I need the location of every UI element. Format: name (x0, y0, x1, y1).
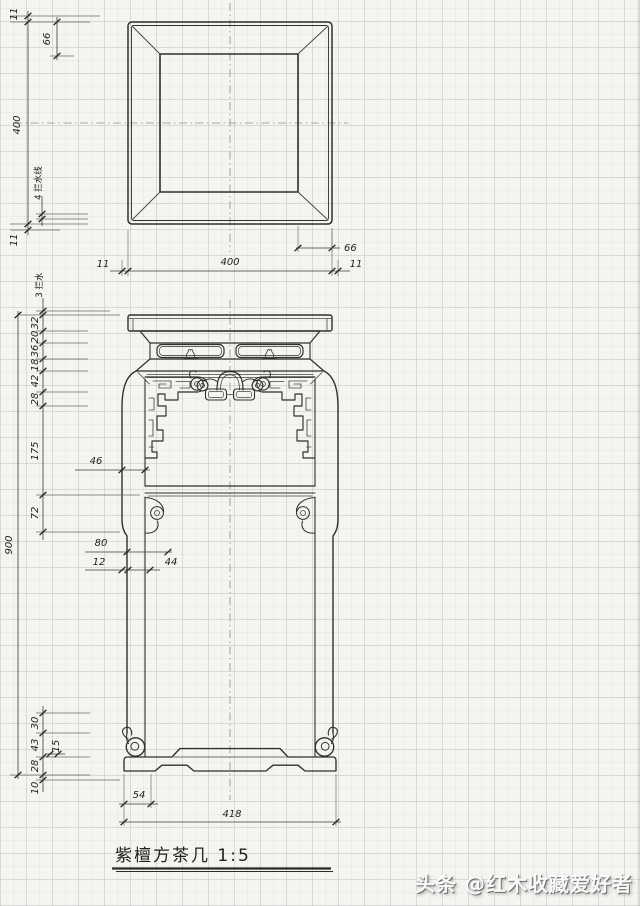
dim-label-400-bottom: 400 (220, 257, 239, 268)
dim-label-80: 80 (95, 538, 108, 549)
leg-assembly-right (252, 371, 338, 757)
ruyi-motif (263, 350, 277, 358)
dim-label-36: 36 (30, 345, 41, 358)
ruyi-motif (184, 350, 198, 358)
front-view (122, 300, 338, 800)
dim-label-418: 418 (222, 809, 241, 820)
technical-drawing-canvas: 11 66 400 4 拦水线 11 66 11 400 11 (0, 0, 640, 906)
dim-label-10: 10 (30, 782, 41, 795)
dim-label-15: 15 (51, 740, 62, 753)
waist-panel-left (157, 345, 224, 359)
dim-label-44: 44 (165, 557, 178, 568)
dim-label-46: 46 (90, 456, 103, 467)
dim-label-66-right: 66 (344, 243, 357, 254)
dim-label-12: 12 (93, 557, 106, 568)
dim-label-28b: 28 (30, 760, 41, 773)
title-block: 紫檀方茶几 1:5 (112, 846, 333, 872)
dim-label-72: 72 (30, 507, 41, 520)
dim-label-11-br: 11 (350, 259, 363, 270)
dim-label-43: 43 (30, 739, 41, 752)
dim-label-32: 32 (30, 317, 41, 330)
dim-label-11-bottom: 11 (9, 234, 20, 247)
dim-note-elevation: 3 拦水 (34, 272, 45, 298)
dim-label-11-top: 11 (9, 8, 20, 21)
dim-label-18: 18 (30, 359, 41, 372)
dim-overall-height: 900 (4, 311, 90, 779)
apron-spandrel (145, 377, 208, 458)
dim-label-20: 20 (30, 331, 41, 344)
dim-label-42: 42 (30, 375, 41, 388)
dim-label-28: 28 (30, 393, 41, 406)
dim-leg: 46 80 12 44 (75, 456, 177, 573)
dim-label-54: 54 (133, 790, 146, 801)
dim-label-11-bl: 11 (97, 259, 110, 270)
dim-label-30: 30 (30, 717, 41, 730)
drawing-title: 紫檀方茶几 1:5 (115, 846, 251, 866)
dim-label-900: 900 (4, 535, 15, 554)
dim-note-lanshuixian: 4 拦水线 (33, 166, 44, 200)
dim-topview-left: 11 66 400 4 拦水线 11 (9, 8, 100, 247)
top-view (14, 3, 348, 252)
shelf-spandrel (145, 498, 164, 534)
dimensions: 11 66 400 4 拦水线 11 66 11 400 11 (4, 8, 362, 826)
drawing-sheet: 11 66 400 4 拦水线 11 66 11 400 11 (0, 0, 640, 906)
watermark-text: 头条 @红木收藏爱好者 (415, 868, 633, 897)
dim-label-400-left: 400 (12, 115, 23, 134)
dim-label-66-left: 66 (42, 33, 53, 46)
waist-panel-right (236, 345, 303, 359)
scroll-foot (123, 727, 145, 756)
dim-label-175: 175 (30, 441, 41, 460)
dim-topview-bottom: 66 11 400 11 (97, 226, 363, 276)
dim-foot-chain: 30 43 28 10 15 (30, 706, 120, 794)
